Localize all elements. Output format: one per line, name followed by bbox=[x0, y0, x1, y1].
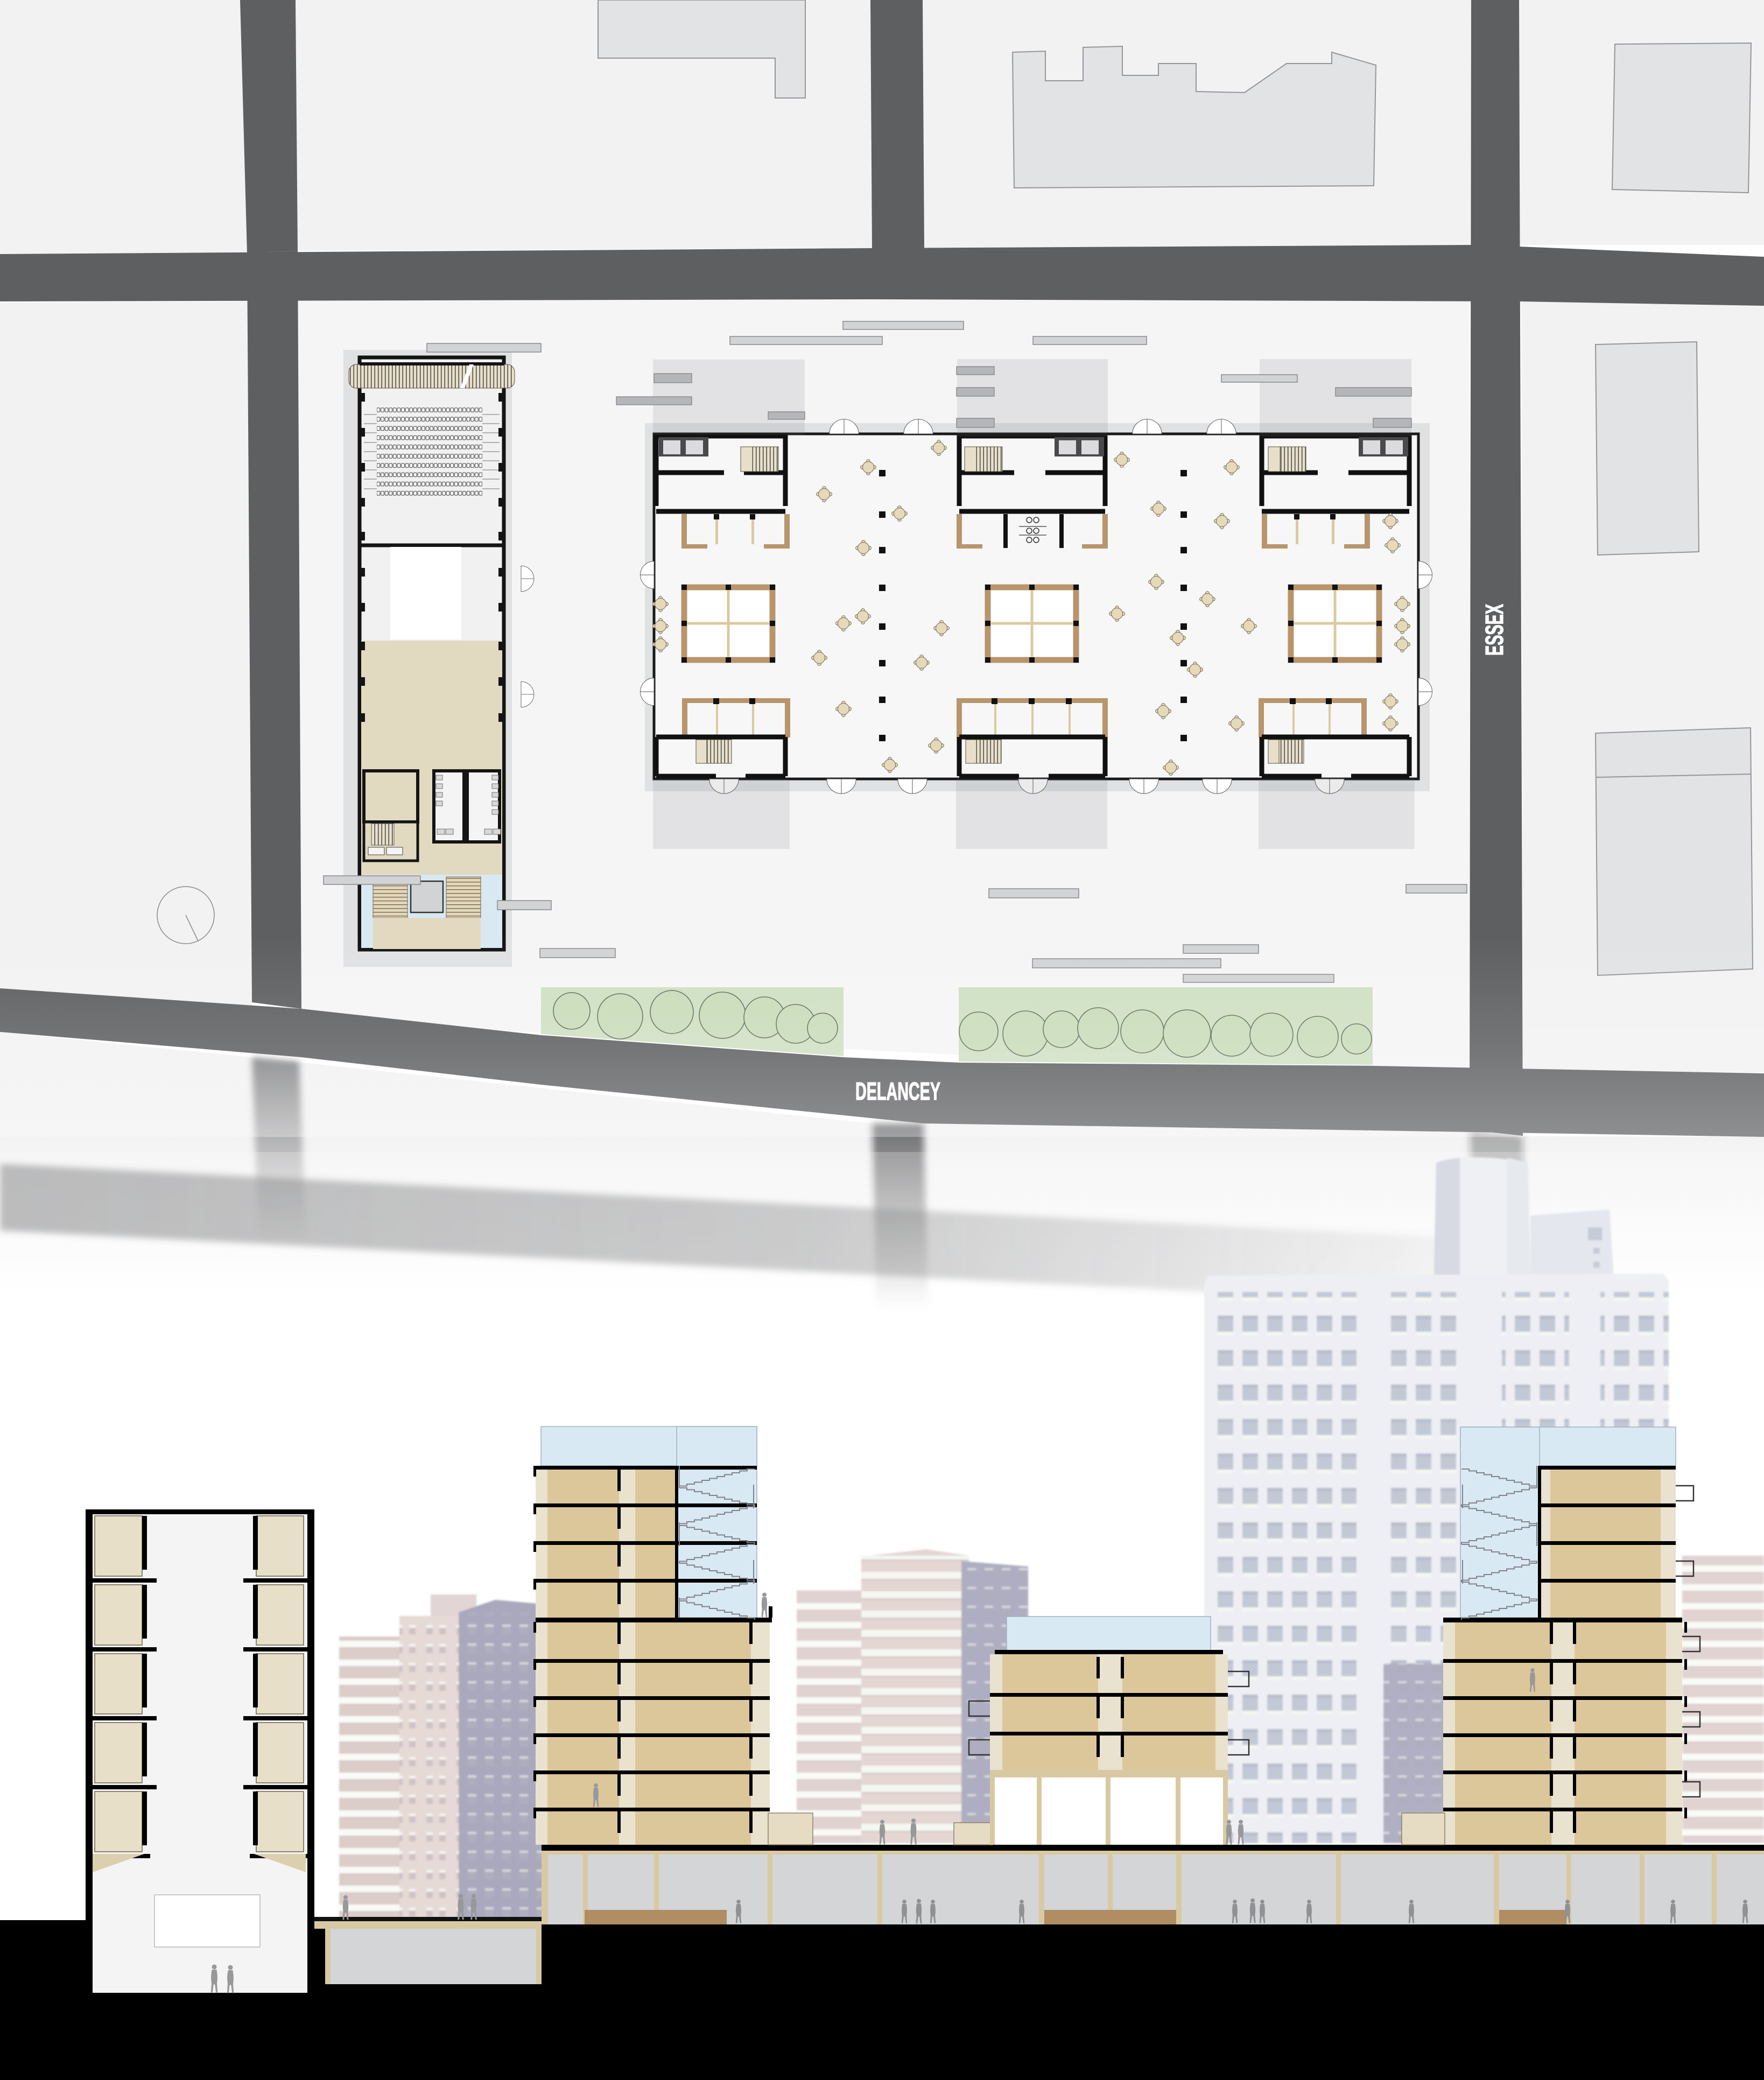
svg-text:DELANCEY: DELANCEY bbox=[855, 1077, 940, 1105]
svg-text:ESSEX: ESSEX bbox=[1480, 604, 1508, 656]
